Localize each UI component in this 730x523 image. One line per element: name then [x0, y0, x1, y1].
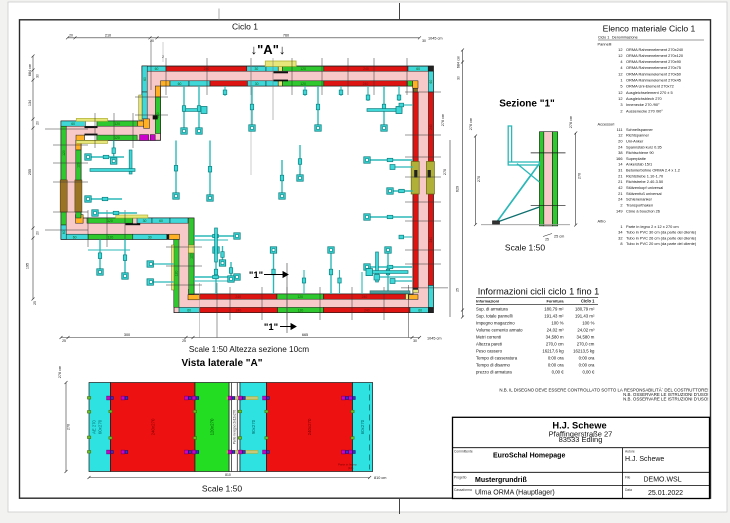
- svg-text:Spannstab kurz 0.35: Spannstab kurz 0.35: [626, 144, 662, 149]
- svg-text:Sup. totale pannelli: Sup. totale pannelli: [476, 314, 513, 319]
- svg-text:ORMA Rahmenelement 270x75: ORMA Rahmenelement 270x75: [626, 65, 681, 70]
- svg-text:240: 240: [235, 295, 241, 299]
- svg-text:Uni-Anker: Uni-Anker: [626, 138, 644, 143]
- svg-text:111: 111: [617, 127, 623, 132]
- svg-text:Elenco materiale Ciclo 1: Elenco materiale Ciclo 1: [603, 24, 696, 34]
- svg-text:60: 60: [178, 82, 182, 86]
- svg-text:EuroSchal Homepage: EuroSchal Homepage: [493, 453, 565, 460]
- svg-text:240: 240: [204, 67, 210, 71]
- svg-text:20: 20: [69, 34, 73, 38]
- svg-text:1: 1: [620, 224, 622, 229]
- svg-text:Altezza pareti: Altezza pareti: [476, 342, 502, 347]
- svg-text:270,0 cm: 270,0 cm: [577, 342, 595, 347]
- svg-text:665: 665: [302, 333, 308, 337]
- svg-text:Sup. di armatura: Sup. di armatura: [476, 307, 508, 312]
- svg-text:276 cm: 276 cm: [441, 114, 445, 126]
- svg-text:25: 25: [456, 288, 460, 292]
- svg-text:Ankerstab 15/1: Ankerstab 15/1: [626, 162, 652, 167]
- svg-text:12: 12: [618, 71, 622, 76]
- svg-text:AE 270: AE 270: [92, 419, 97, 433]
- svg-text:30: 30: [413, 339, 417, 343]
- svg-text:Tubo in PVC 20 cm (da parte de: Tubo in PVC 20 cm (da parte del cliente): [626, 241, 697, 246]
- svg-text:Richtstrebe 2.40-3.50: Richtstrebe 2.40-3.50: [626, 179, 664, 184]
- svg-text:Richtstrebe 1.10-1.70: Richtstrebe 1.10-1.70: [626, 173, 664, 178]
- svg-text:810: 810: [225, 473, 231, 477]
- svg-text:240: 240: [362, 295, 368, 299]
- svg-text:Superplatte: Superplatte: [626, 156, 646, 161]
- svg-text:Richtspanner: Richtspanner: [626, 133, 650, 138]
- svg-text:24,02 m³: 24,02 m³: [547, 328, 565, 333]
- svg-text:32: 32: [618, 235, 622, 240]
- svg-text:684 cm: 684 cm: [28, 64, 32, 76]
- svg-text:Schienenanker: Schienenanker: [626, 197, 653, 202]
- svg-text:Vista laterale "A": Vista laterale "A": [181, 358, 262, 369]
- svg-text:149: 149: [616, 208, 623, 213]
- svg-text:File: File: [625, 476, 630, 480]
- svg-text:ORMA Rahmenelement 270x120: ORMA Rahmenelement 270x120: [626, 53, 684, 58]
- svg-text:195: 195: [26, 263, 30, 269]
- svg-text:Parte in legno 2x12x270: Parte in legno 2x12x270: [233, 410, 237, 445]
- svg-text:12: 12: [618, 47, 622, 52]
- svg-text:1: 1: [620, 78, 622, 83]
- svg-text:240: 240: [429, 237, 433, 243]
- svg-text:34,580 m: 34,580 m: [546, 335, 564, 340]
- svg-text:21: 21: [618, 191, 622, 196]
- svg-text:30: 30: [255, 82, 259, 86]
- svg-text:240: 240: [236, 309, 242, 313]
- svg-text:60: 60: [143, 77, 147, 81]
- svg-text:8: 8: [620, 241, 622, 246]
- svg-text:240: 240: [364, 309, 370, 313]
- svg-text:25 cm: 25 cm: [554, 235, 564, 239]
- svg-text:Data: Data: [625, 488, 632, 492]
- svg-text:34,580 m: 34,580 m: [576, 335, 594, 340]
- svg-text:Tubo in PVC 30 cm (da parte de: Tubo in PVC 30 cm (da parte del cliente): [626, 230, 697, 235]
- svg-text:60: 60: [429, 80, 433, 84]
- svg-text:12: 12: [618, 53, 622, 58]
- svg-text:Autore: Autore: [625, 449, 635, 453]
- svg-text:Denominazione: Denominazione: [612, 36, 638, 40]
- svg-text:Tempo di disarmo: Tempo di disarmo: [476, 363, 511, 368]
- svg-text:DEMO.WSL: DEMO.WSL: [644, 476, 682, 483]
- svg-text:25: 25: [182, 339, 186, 343]
- svg-text:Scale 1:50: Scale 1:50: [505, 243, 545, 253]
- svg-text:ORMA Rahmenelement 270x90: ORMA Rahmenelement 270x90: [626, 59, 682, 64]
- svg-text:25: 25: [33, 301, 37, 305]
- svg-text:270: 270: [67, 424, 71, 430]
- svg-text:240: 240: [363, 82, 369, 86]
- svg-text:5: 5: [620, 84, 622, 89]
- svg-text:"1": "1": [249, 270, 263, 281]
- svg-text:0:00 ora: 0:00 ora: [548, 356, 564, 361]
- svg-text:Fornitura: Fornitura: [547, 299, 565, 304]
- svg-text:↓"A"↓: ↓"A"↓: [251, 42, 286, 57]
- svg-text:20: 20: [36, 121, 40, 125]
- svg-text:30: 30: [457, 76, 461, 80]
- svg-text:Schnellspanner: Schnellspanner: [626, 127, 654, 132]
- svg-text:0:00 ora: 0:00 ora: [579, 363, 595, 368]
- svg-text:Sezione "1": Sezione "1": [499, 99, 555, 110]
- svg-text:24,02 m³: 24,02 m³: [577, 328, 595, 333]
- svg-text:12: 12: [618, 90, 622, 95]
- svg-text:ORMA Rahmenelement 270x240: ORMA Rahmenelement 270x240: [626, 47, 684, 52]
- svg-text:Tempo di casseratura: Tempo di casseratura: [476, 356, 518, 361]
- svg-text:60: 60: [155, 67, 159, 71]
- svg-text:60: 60: [187, 309, 191, 313]
- svg-text:N.B. OSSERVARE LE ISTRUZIONI D: N.B. OSSERVARE LE ISTRUZIONI D'USO!: [623, 396, 708, 401]
- svg-text:120: 120: [300, 67, 306, 71]
- svg-text:270: 270: [578, 173, 582, 179]
- svg-text:180,79 m²: 180,79 m²: [575, 307, 595, 312]
- svg-text:Committente: Committente: [454, 449, 473, 453]
- svg-text:12: 12: [618, 96, 622, 101]
- svg-text:0:00 ora: 0:00 ora: [548, 363, 564, 368]
- svg-text:Cassaforma: Cassaforma: [454, 488, 472, 492]
- svg-text:60: 60: [418, 309, 422, 313]
- svg-text:Impegno magazzino: Impegno magazzino: [476, 321, 515, 326]
- svg-text:"1": "1": [264, 322, 278, 333]
- svg-text:166: 166: [616, 156, 623, 161]
- svg-text:810 cm: 810 cm: [374, 476, 386, 480]
- svg-text:H.J. Schewe: H.J. Schewe: [625, 456, 664, 463]
- svg-text:30: 30: [36, 74, 40, 78]
- svg-text:60x270: 60x270: [98, 419, 103, 434]
- svg-text:1045 cm: 1045 cm: [428, 36, 443, 40]
- svg-text:120: 120: [300, 82, 306, 86]
- svg-text:(10): (10): [348, 466, 353, 470]
- svg-text:Metri correnti: Metri correnti: [476, 335, 501, 340]
- svg-text:134: 134: [28, 100, 32, 106]
- svg-text:Altro: Altro: [598, 219, 606, 224]
- svg-text:120x270: 120x270: [210, 418, 215, 435]
- svg-text:Ciclo 1: Ciclo 1: [598, 36, 609, 40]
- svg-text:240: 240: [363, 67, 369, 71]
- svg-text:Aussenecke 270 /90°: Aussenecke 270 /90°: [626, 108, 663, 113]
- svg-text:42: 42: [618, 185, 622, 190]
- svg-text:Volume cemento armato: Volume cemento armato: [476, 328, 523, 333]
- svg-text:760: 760: [283, 33, 289, 37]
- svg-text:30: 30: [148, 235, 152, 239]
- svg-text:270: 270: [477, 176, 481, 182]
- svg-text:83533 Edling: 83533 Edling: [559, 435, 603, 444]
- svg-text:20: 20: [36, 231, 40, 235]
- svg-text:Tubo in PVC 26 cm (da parte de: Tubo in PVC 26 cm (da parte del cliente): [626, 235, 697, 240]
- svg-text:60: 60: [71, 122, 75, 126]
- svg-text:2: 2: [620, 108, 622, 113]
- svg-text:210: 210: [105, 33, 111, 37]
- svg-text:Innenecke 270 /90°: Innenecke 270 /90°: [626, 102, 660, 107]
- svg-text:100 %: 100 %: [551, 321, 563, 326]
- svg-text:276 cm: 276 cm: [58, 366, 62, 378]
- svg-text:25: 25: [62, 339, 66, 343]
- svg-text:Stützenfuß universal: Stützenfuß universal: [626, 191, 662, 196]
- svg-text:629: 629: [456, 186, 460, 192]
- svg-text:240x270: 240x270: [150, 418, 155, 435]
- svg-text:120: 120: [107, 219, 113, 223]
- svg-text:120: 120: [62, 150, 66, 156]
- svg-text:Parte in legno 2 x 12 x 270 cm: Parte in legno 2 x 12 x 270 cm: [626, 224, 679, 229]
- svg-text:ORMA Rahmenelement 270x45: ORMA Rahmenelement 270x45: [626, 78, 681, 83]
- svg-text:25.01.2022: 25.01.2022: [648, 490, 683, 497]
- svg-text:270,0 cm: 270,0 cm: [546, 342, 564, 347]
- svg-text:Progetto: Progetto: [454, 476, 467, 480]
- svg-text:191,43 m²: 191,43 m²: [544, 314, 564, 319]
- svg-text:0:00 ora: 0:00 ora: [579, 356, 595, 361]
- svg-text:31: 31: [618, 168, 622, 173]
- svg-text:120: 120: [190, 253, 194, 259]
- svg-text:21: 21: [618, 179, 622, 184]
- svg-text:276 cm: 276 cm: [469, 118, 473, 130]
- svg-text:2: 2: [620, 203, 622, 208]
- svg-text:120: 120: [298, 309, 304, 313]
- svg-text:Peso cassero: Peso cassero: [476, 349, 503, 354]
- svg-text:Accessori: Accessori: [598, 122, 615, 127]
- svg-text:60x270: 60x270: [360, 419, 365, 434]
- svg-text:16217,6 kg: 16217,6 kg: [542, 349, 564, 354]
- svg-text:ORMA Rahmenelement 270x60: ORMA Rahmenelement 270x60: [626, 71, 682, 76]
- svg-text:21: 21: [618, 173, 622, 178]
- svg-text:Stützenkopf universal: Stützenkopf universal: [626, 185, 663, 190]
- svg-text:0,00 €: 0,00 €: [582, 370, 595, 375]
- svg-text:12: 12: [618, 133, 622, 138]
- svg-text:Ciclo 1: Ciclo 1: [581, 299, 595, 304]
- svg-text:300: 300: [124, 333, 130, 337]
- svg-text:Scale 1:50: Scale 1:50: [202, 484, 242, 494]
- svg-text:3: 3: [620, 102, 622, 107]
- svg-text:38: 38: [618, 150, 622, 155]
- svg-text:Informazioni: Informazioni: [476, 299, 499, 304]
- svg-text:270: 270: [443, 169, 447, 175]
- svg-text:25: 25: [545, 238, 549, 242]
- svg-text:Scale 1:50 Altezza sezione 1: Scale 1:50 Altezza sezione 10cm: [189, 345, 309, 354]
- svg-text:90x270: 90x270: [251, 419, 256, 434]
- svg-text:30: 30: [255, 67, 259, 71]
- svg-text:Richtschiene 90: Richtschiene 90: [626, 150, 655, 155]
- svg-text:Ciclo 1: Ciclo 1: [232, 22, 258, 32]
- svg-text:prezzo di armatura: prezzo di armatura: [476, 370, 512, 375]
- svg-text:Ausgleichsblech 270: Ausgleichsblech 270: [626, 96, 663, 101]
- svg-text:60: 60: [62, 230, 66, 234]
- svg-text:30: 30: [143, 219, 147, 223]
- svg-text:240: 240: [429, 124, 433, 130]
- svg-text:180,79 m²: 180,79 m²: [544, 307, 564, 312]
- svg-text:276 cm: 276 cm: [569, 116, 573, 128]
- svg-text:30: 30: [422, 39, 426, 43]
- svg-text:1045 cm: 1045 cm: [427, 336, 442, 340]
- svg-text:60: 60: [416, 67, 420, 71]
- svg-text:16213,5 kg: 16213,5 kg: [573, 349, 595, 354]
- svg-text:Transporthaken: Transporthaken: [626, 203, 653, 208]
- svg-text:Betonierbühne ORMA 2.4 x 1.2: Betonierbühne ORMA 2.4 x 1.2: [626, 168, 680, 173]
- svg-text:240x270: 240x270: [307, 418, 312, 435]
- svg-text:ORMA Uni-Element 270x72: ORMA Uni-Element 270x72: [626, 84, 674, 89]
- svg-text:100 %: 100 %: [582, 321, 594, 326]
- svg-text:120: 120: [175, 270, 179, 276]
- svg-text:0,00 €: 0,00 €: [552, 370, 565, 375]
- svg-text:60: 60: [159, 219, 163, 223]
- svg-text:120: 120: [114, 122, 120, 126]
- svg-text:120: 120: [297, 295, 303, 299]
- svg-text:Ulma ORMA (Hauptlager): Ulma ORMA (Hauptlager): [475, 490, 555, 497]
- svg-text:Pannelli: Pannelli: [598, 42, 612, 47]
- svg-text:Mustergrundriß: Mustergrundriß: [475, 477, 527, 484]
- svg-text:20: 20: [150, 39, 154, 43]
- svg-text:Cône à bouchon 26: Cône à bouchon 26: [626, 208, 660, 213]
- svg-text:191,43 m²: 191,43 m²: [575, 314, 595, 319]
- svg-text:255: 255: [28, 169, 32, 175]
- svg-text:684 cm: 684 cm: [457, 56, 461, 68]
- svg-text:60: 60: [73, 235, 77, 239]
- svg-text:120: 120: [114, 136, 120, 140]
- svg-text:Ausgleichselement 270 ± 5: Ausgleichselement 270 ± 5: [626, 90, 673, 95]
- svg-text:Informazioni cicli ciclo 1 fi: Informazioni cicli ciclo 1 fino 1: [478, 287, 600, 297]
- svg-text:120: 120: [108, 235, 114, 239]
